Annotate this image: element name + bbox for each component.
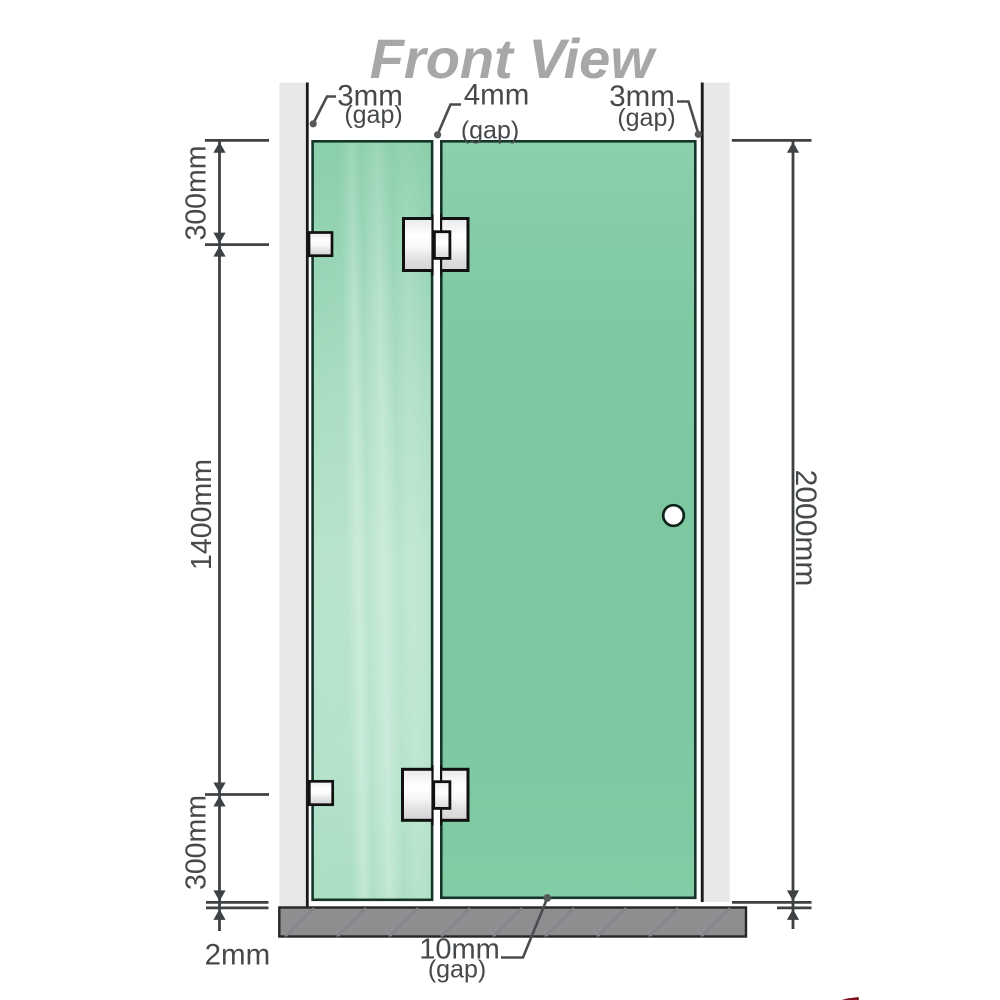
svg-text:(gap): (gap): [617, 104, 675, 132]
svg-text:(gap): (gap): [461, 117, 519, 145]
svg-text:2mm: 2mm: [205, 939, 271, 972]
svg-text:2000mm: 2000mm: [789, 470, 822, 587]
svg-text:300mm: 300mm: [181, 795, 213, 890]
svg-text:4mm: 4mm: [464, 79, 530, 112]
svg-text:(gap): (gap): [344, 101, 402, 129]
svg-text:1400mm: 1400mm: [186, 459, 218, 570]
svg-text:(gap): (gap): [428, 956, 486, 984]
svg-text:300mm: 300mm: [181, 145, 213, 240]
